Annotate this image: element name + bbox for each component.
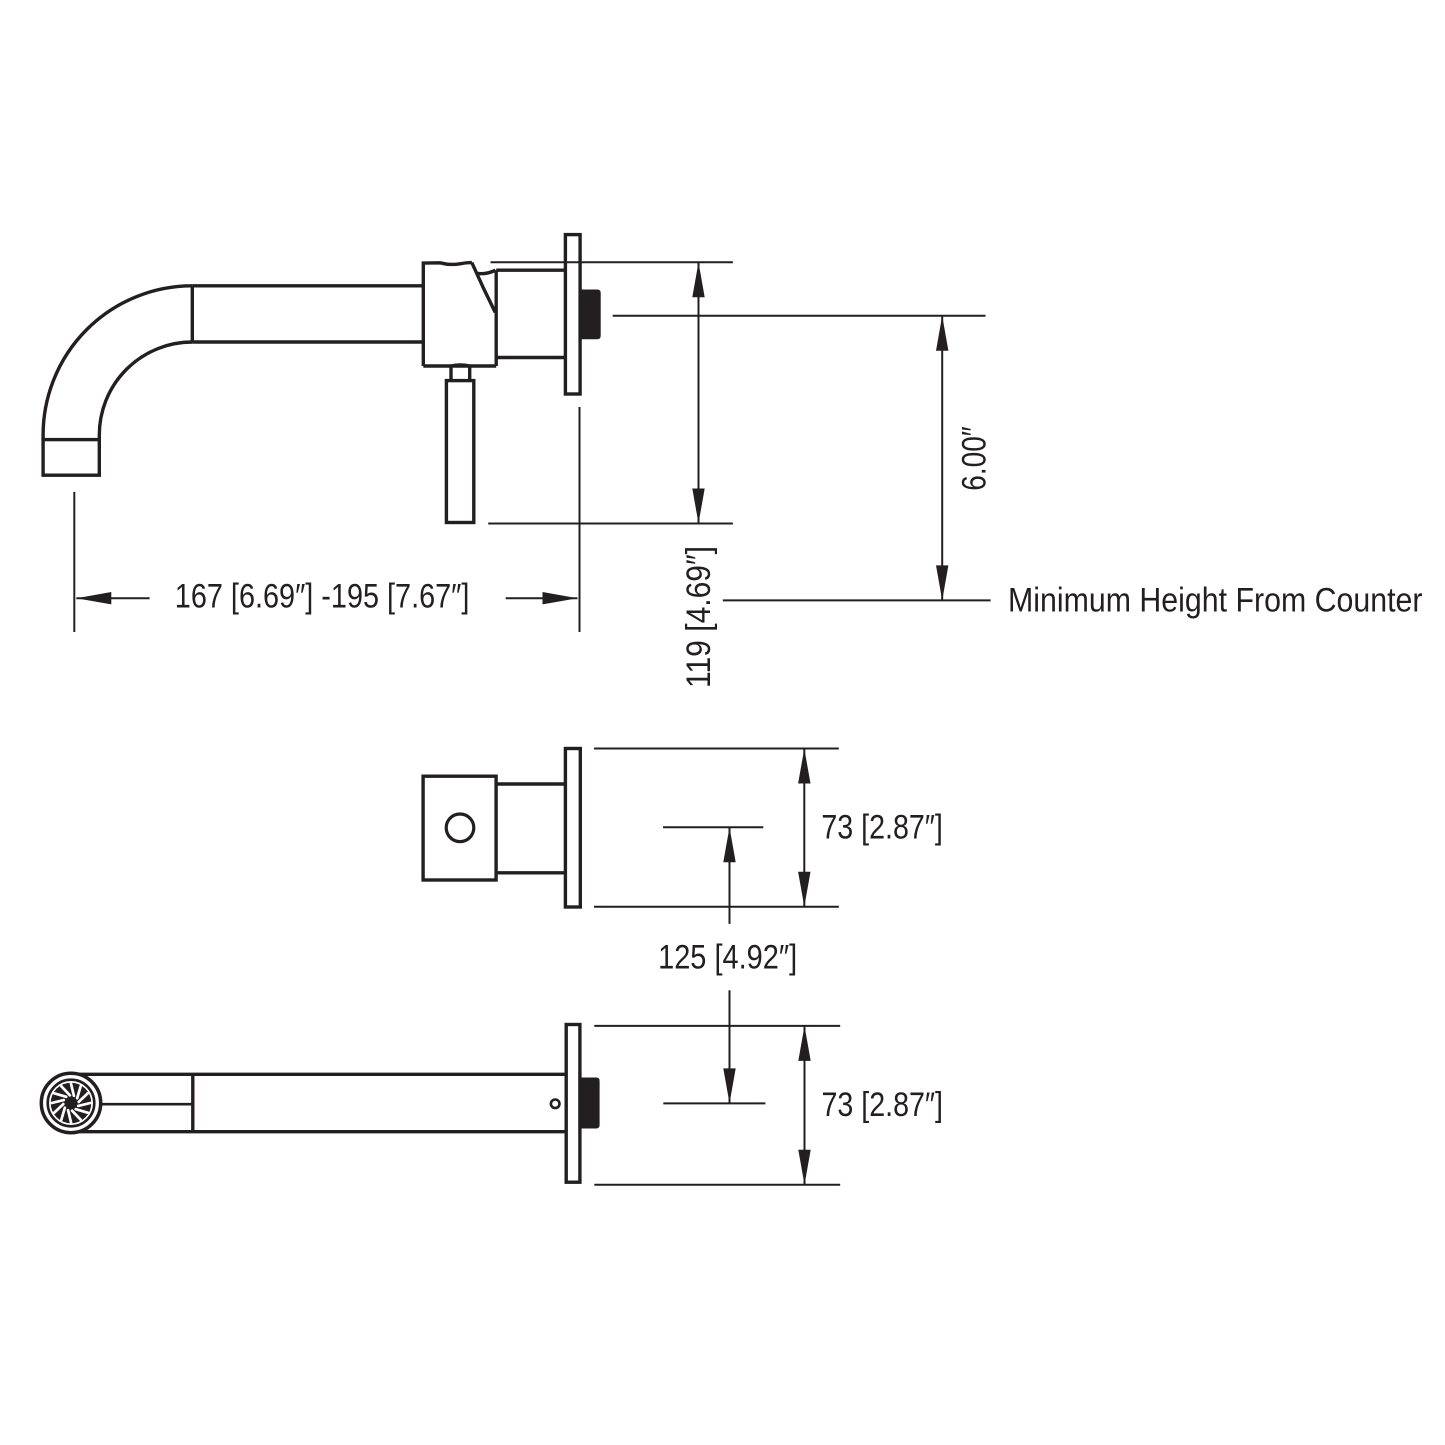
svg-text:119 [4.69″]: 119 [4.69″] (680, 546, 718, 688)
svg-text:Minimum Height From Counter: Minimum Height From Counter (1008, 582, 1423, 620)
svg-text:167 [6.69″] -195 [7.67″]: 167 [6.69″] -195 [7.67″] (175, 578, 470, 616)
svg-text:73 [2.87″]: 73 [2.87″] (822, 1086, 944, 1124)
svg-text:125 [4.92″]: 125 [4.92″] (658, 939, 797, 977)
svg-text:73 [2.87″]: 73 [2.87″] (821, 809, 943, 847)
svg-text:6.00″: 6.00″ (956, 426, 994, 490)
